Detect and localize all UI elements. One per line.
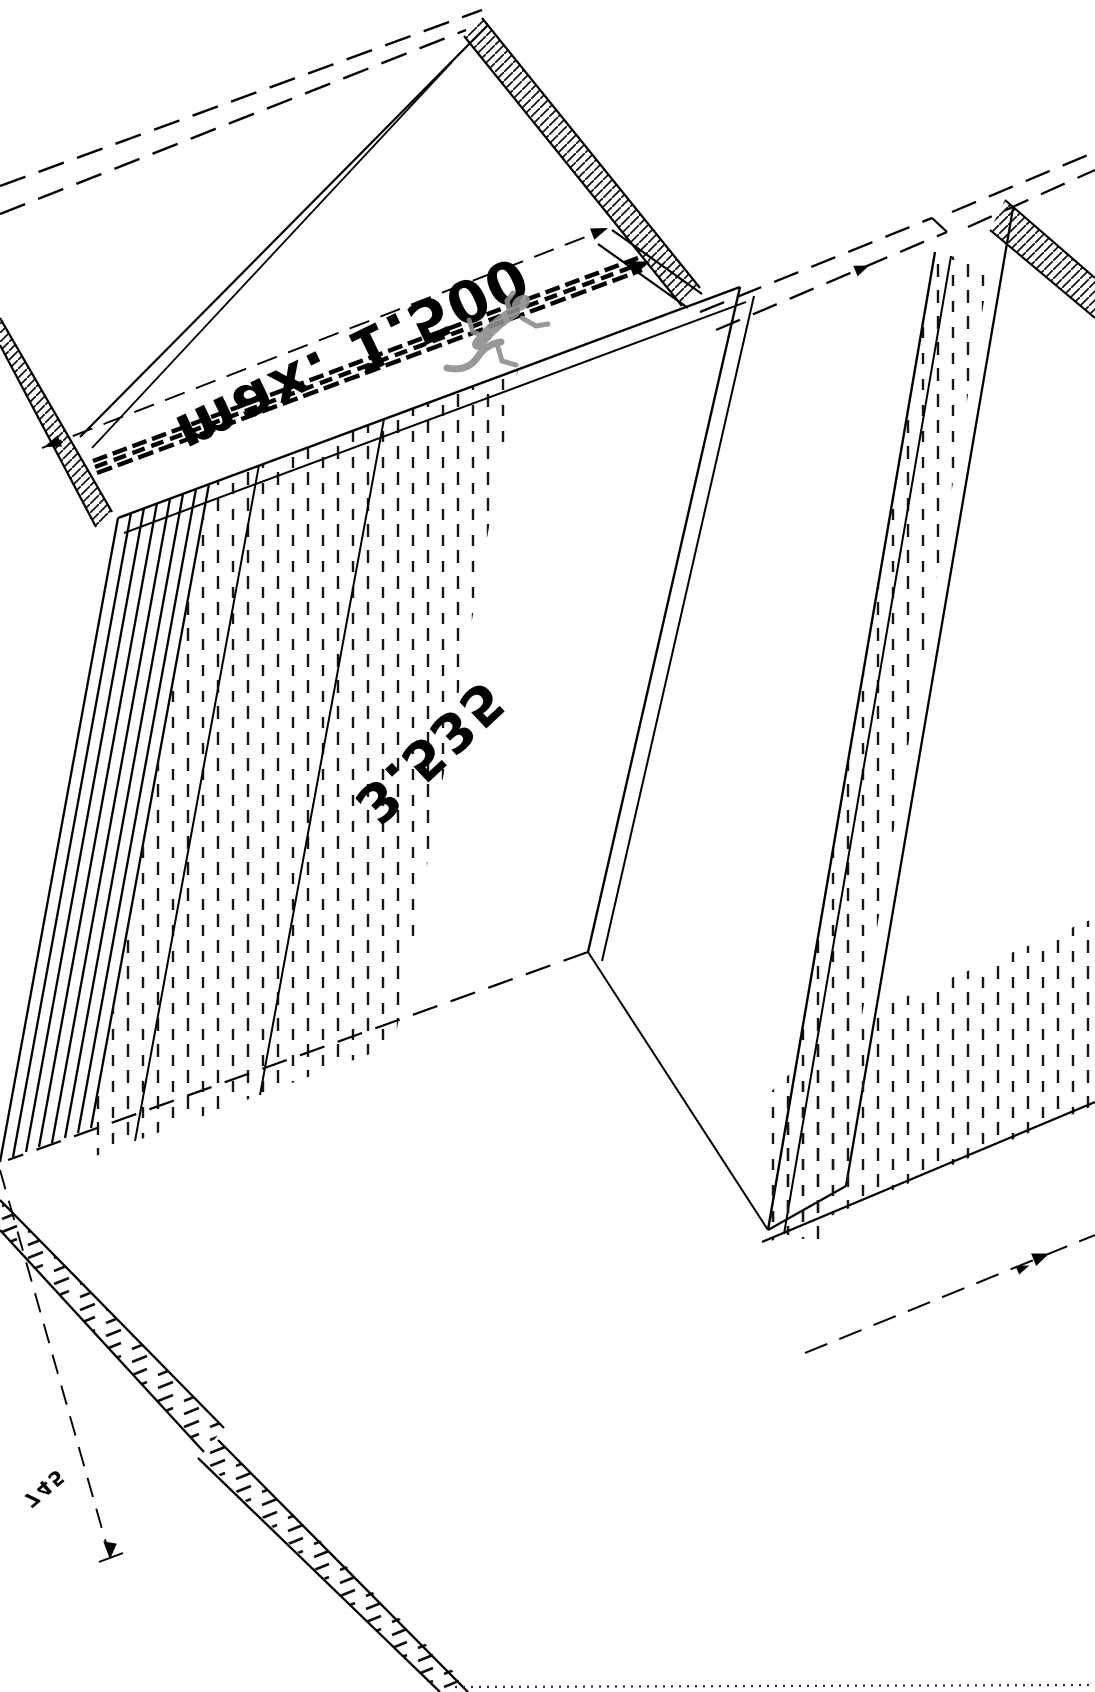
bottom-left-edge-hatch	[0, 1200, 224, 1452]
dimension-max-1500: max. 1.500	[42, 222, 610, 468]
dotted-border-bottom	[455, 1685, 1095, 1687]
arrowhead-right	[590, 222, 610, 239]
drawing-sheet: max. 1.500	[0, 0, 1095, 1692]
dimension-label-bottom-left: 745	[19, 1463, 71, 1512]
top-arrowhead	[854, 261, 870, 275]
technical-drawing: max. 1.500	[0, 0, 1095, 1692]
bottom-left-panel	[0, 1170, 468, 1692]
br-arrowhead-1	[1032, 1248, 1050, 1265]
